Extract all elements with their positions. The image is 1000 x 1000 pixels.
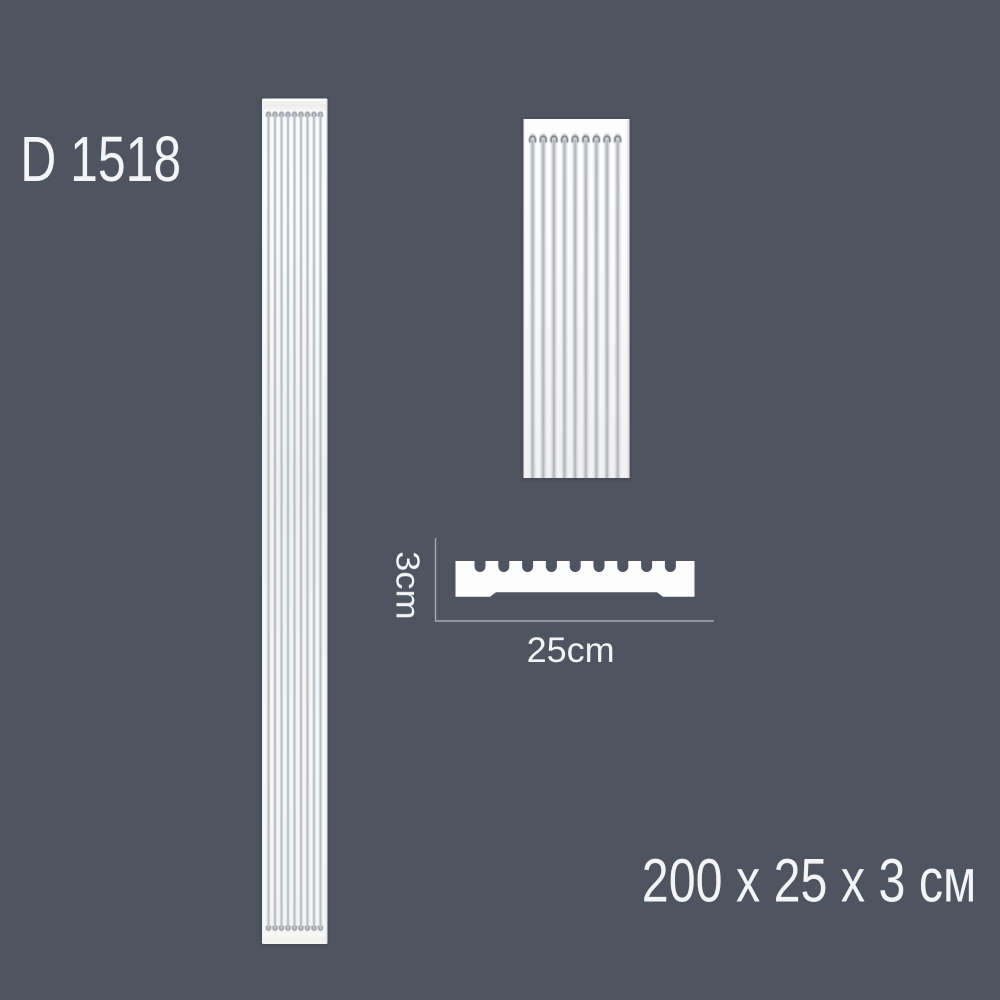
svg-text:D 1518: D 1518 [20, 123, 181, 195]
svg-text:200 x 25 x 3 см: 200 x 25 x 3 см [642, 847, 977, 915]
svg-text:25cm: 25cm [527, 631, 615, 670]
svg-text:3cm: 3cm [389, 551, 426, 620]
